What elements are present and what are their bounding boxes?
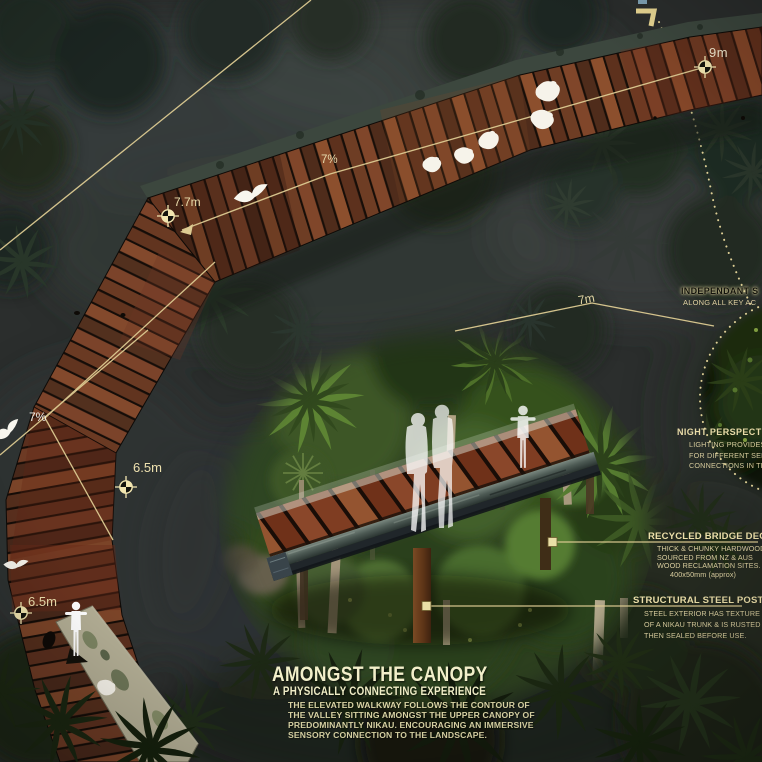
spot-level-label-7m: 7m — [577, 291, 596, 308]
structural-post-line: STEEL EXTERIOR HAS TEXTURE — [644, 609, 761, 620]
structural-post-line: THEN SEALED BEFORE USE. — [644, 631, 761, 642]
recycled-decking-line: 400x50mm (approx) — [657, 571, 762, 580]
slope-label-left: 7% — [29, 410, 46, 424]
night-perspective-line: CONNECTIONS IN THE E — [689, 461, 762, 472]
page-title: AMONGST THE CANOPY — [272, 663, 488, 687]
slope-label-top: 7% — [321, 154, 338, 166]
independant-structure-heading: INDEPENDANT S — [681, 286, 758, 296]
canopy-walkway-plan: 9m 7.7m 7m 6.5m 6.5m 7% 7% INDEPENDANT S… — [0, 0, 762, 762]
night-perspective-heading: NIGHT PERSPECTIVE — [677, 427, 762, 437]
page-description: THE ELEVATED WALKWAY FOLLOWS THE CONTOUR… — [288, 701, 535, 741]
night-perspective-line: FOR DIFFERENT SENSORY — [689, 451, 762, 462]
structural-post-line: OF A NIKAU TRUNK & IS RUSTED — [644, 620, 761, 631]
spot-level-label-7-7m: 7.7m — [174, 195, 201, 209]
independant-structure-subheading: ALONG ALL KEY AC — [683, 298, 756, 307]
structural-post-heading: STRUCTURAL STEEL POST — [633, 595, 762, 606]
recycled-decking-heading: RECYCLED BRIDGE DECKING — [648, 531, 762, 542]
night-perspective-body: LIGHTING PROVIDES OPPFOR DIFFERENT SENSO… — [689, 440, 762, 472]
decking-callout-square — [548, 538, 557, 547]
spot-level-label-9m: 9m — [709, 45, 728, 60]
structural-post-body: STEEL EXTERIOR HAS TEXTUREOF A NIKAU TRU… — [644, 609, 761, 641]
page-subtitle: A PHYSICALLY CONNECTING EXPERIENCE — [273, 686, 486, 698]
spot-level-label-6-5m-lower: 6.5m — [28, 594, 57, 609]
night-perspective-line: LIGHTING PROVIDES OPP — [689, 440, 762, 451]
spot-level-label-6-5m-upper: 6.5m — [133, 460, 162, 475]
plan-graphics — [0, 0, 762, 762]
description-line: SENSORY CONNECTION TO THE LANDSCAPE. — [288, 731, 535, 741]
recycled-decking-body: THICK & CHUNKY HARDWOODSOURCED FROM NZ &… — [657, 545, 762, 579]
post-callout-square — [422, 602, 431, 611]
